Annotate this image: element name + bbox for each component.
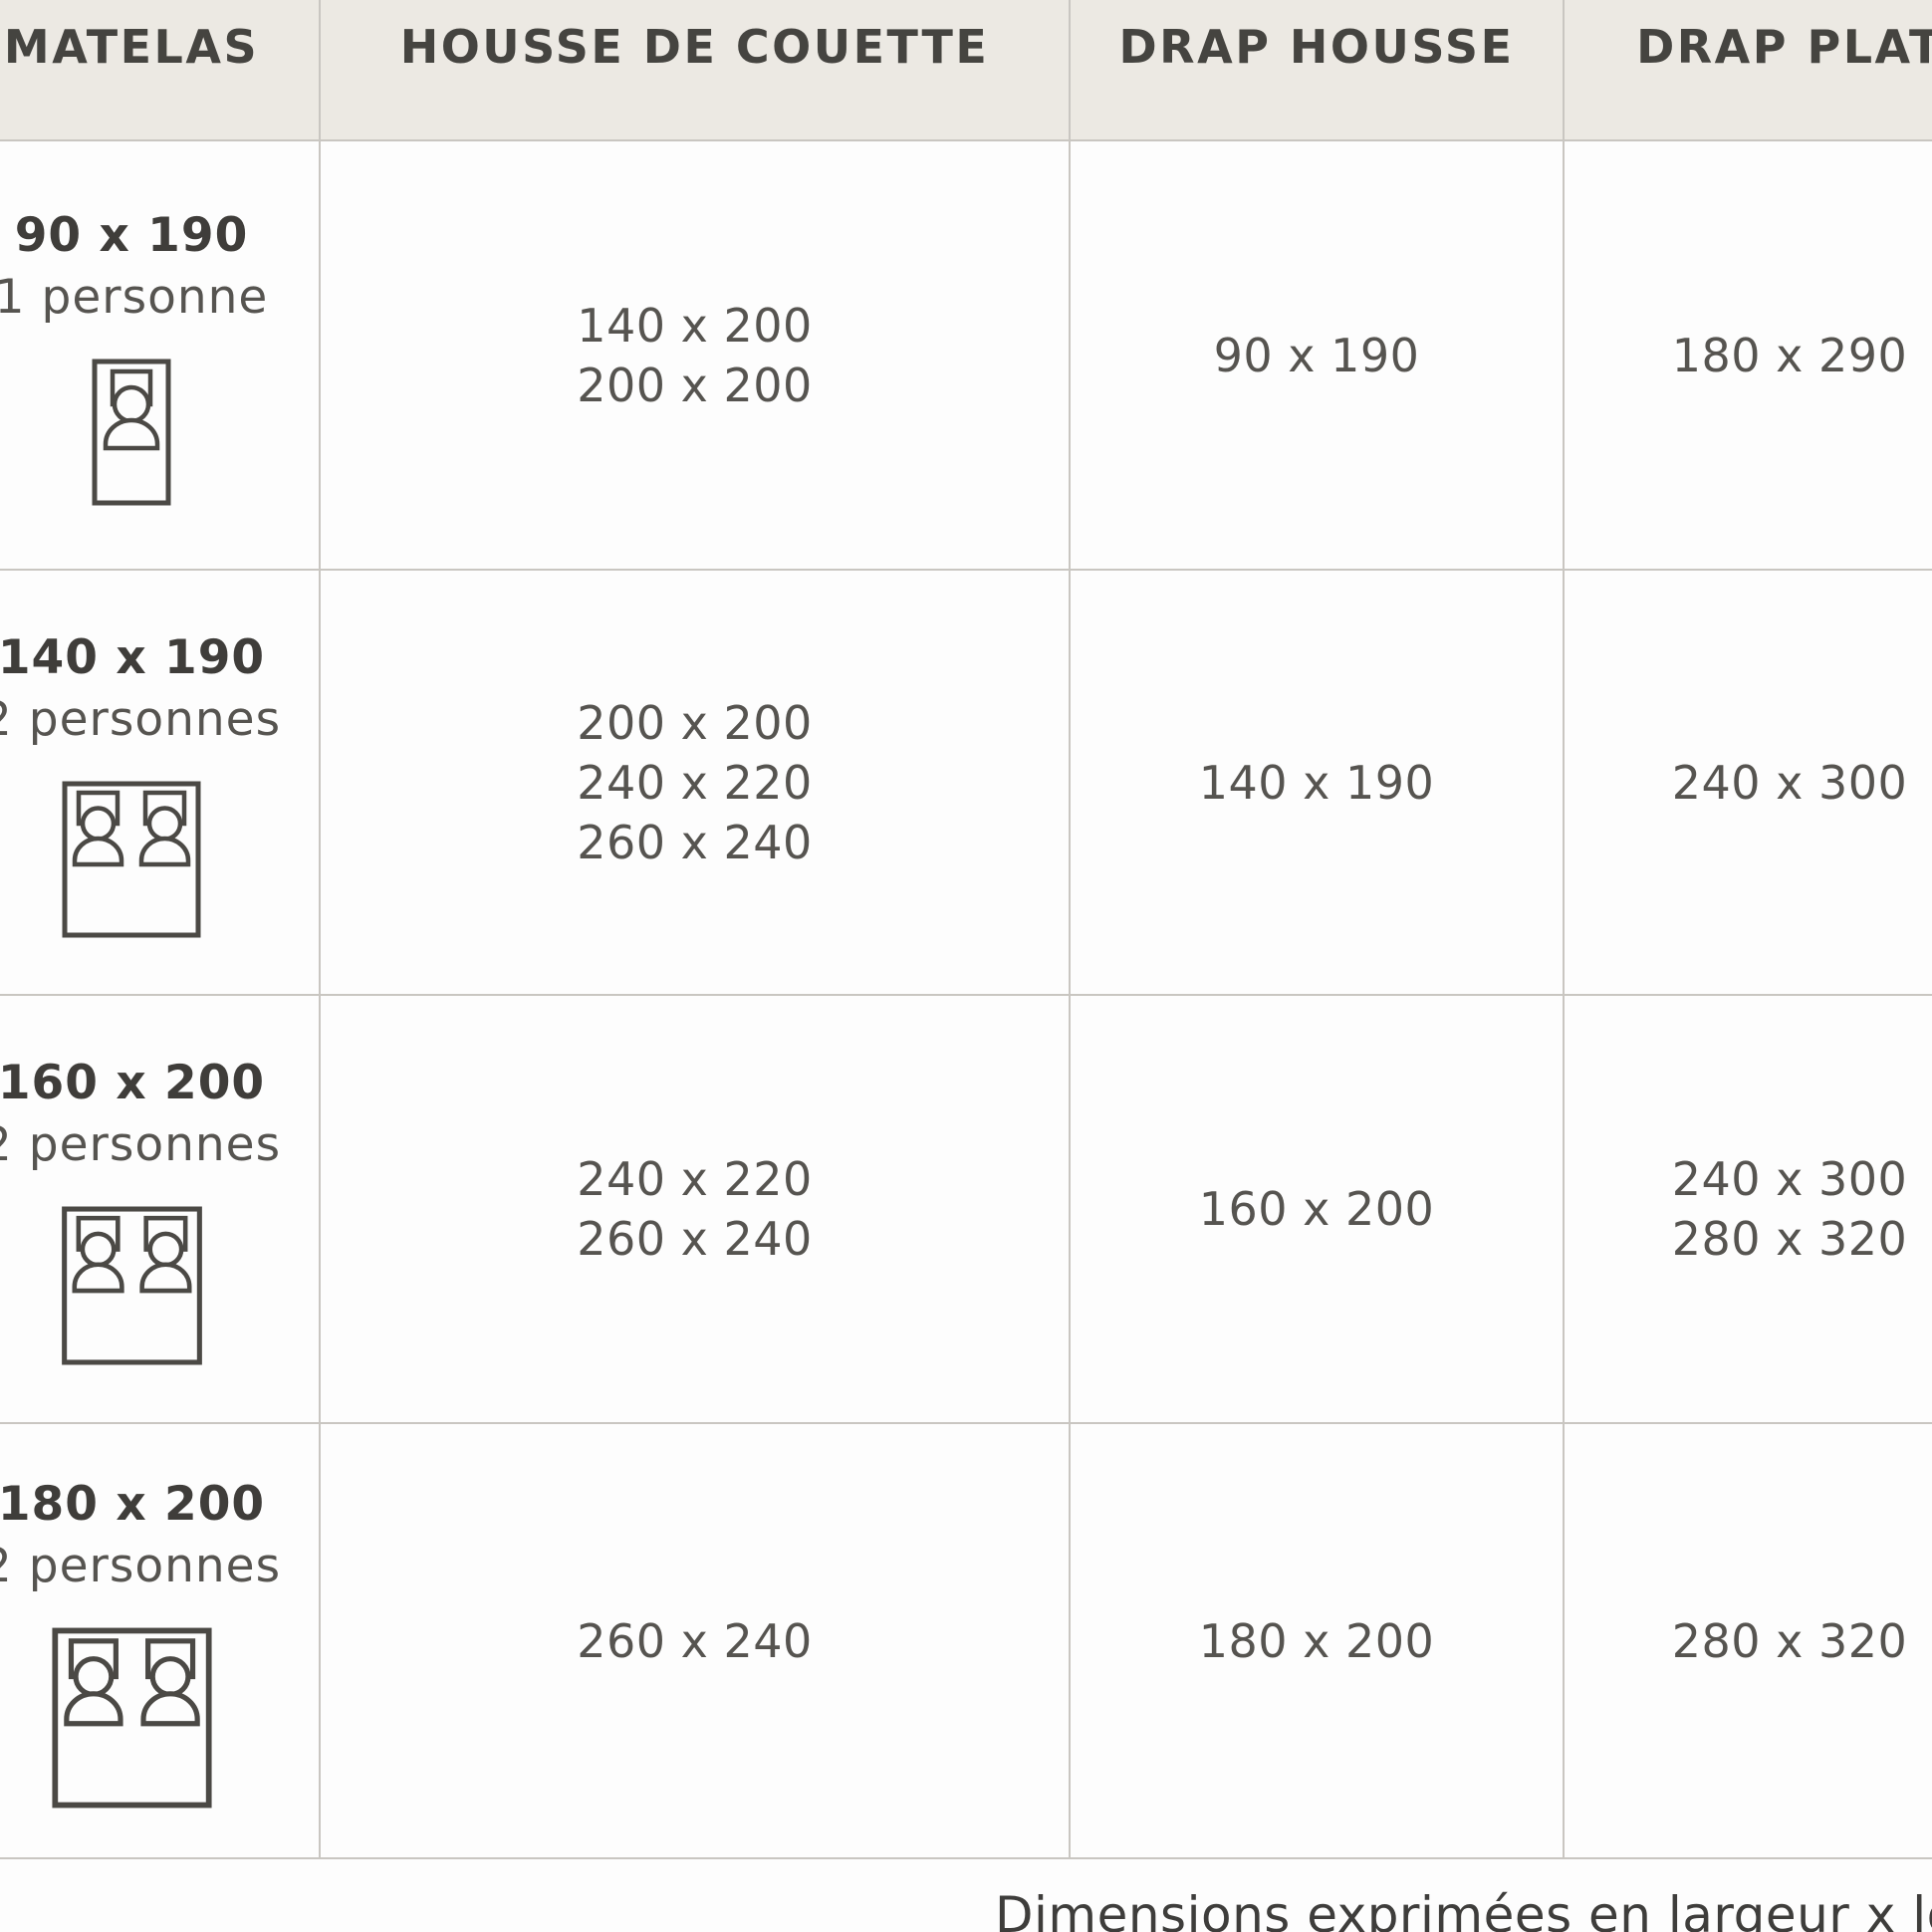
row4-housse-de-couette-cell: 260 x 240: [321, 1424, 1071, 1859]
row3-drap-plat-cell: 240 x 300 280 x 320: [1565, 996, 1932, 1424]
mattress-persons-label: 2 personnes: [0, 689, 281, 751]
mattress-persons-label: 2 personnes: [0, 1114, 281, 1176]
double-bed-icon: [45, 1627, 219, 1809]
size-value: 180 x 200: [1199, 1611, 1435, 1671]
mattress-size-label: 140 x 190: [0, 627, 265, 689]
size-value: 260 x 240: [577, 1209, 813, 1269]
size-table: MATELAS HOUSSE DE COUETTE DRAP HOUSSE DR…: [0, 0, 1932, 1859]
size-value: 140 x 200: [577, 296, 813, 356]
row2-drap-plat-cell: 240 x 300: [1565, 571, 1932, 996]
row2-matelas-cell: 140 x 190 2 personnes: [0, 571, 321, 996]
size-value: 90 x 190: [1214, 326, 1420, 385]
row1-housse-de-couette-cell: 140 x 200 200 x 200: [321, 141, 1071, 571]
header-cell-drap-housse: DRAP HOUSSE: [1071, 0, 1565, 141]
header-label-drap-plat: DRAP PLAT: [1636, 20, 1932, 74]
size-value: 280 x 320: [1672, 1611, 1908, 1671]
row1-drap-housse-cell: 90 x 190: [1071, 141, 1565, 571]
size-value: 160 x 200: [1199, 1179, 1435, 1239]
row3-drap-housse-cell: 160 x 200: [1071, 996, 1565, 1424]
double-bed-icon: [55, 1206, 209, 1365]
mattress-persons-label: 2 personnes: [0, 1536, 281, 1597]
row4-matelas-cell: 180 x 200 2 personnes: [0, 1424, 321, 1859]
header-cell-matelas: MATELAS: [0, 0, 321, 141]
header-cell-housse-de-couette: HOUSSE DE COUETTE: [321, 0, 1071, 141]
row1-matelas-cell: 90 x 190 1 personne: [0, 141, 321, 571]
mattress-size-label: 160 x 200: [0, 1053, 265, 1114]
header-label-matelas: MATELAS: [4, 20, 259, 74]
mattress-size-label: 180 x 200: [0, 1474, 265, 1536]
header-label-housse-de-couette: HOUSSE DE COUETTE: [400, 20, 990, 74]
row2-housse-de-couette-cell: 200 x 200 240 x 220 260 x 240: [321, 571, 1071, 996]
mattress-persons-label: 1 personne: [0, 267, 268, 329]
header-cell-drap-plat: DRAP PLAT: [1565, 0, 1932, 141]
size-value: 240 x 300: [1672, 753, 1908, 813]
single-bed-icon: [92, 359, 171, 506]
size-value: 280 x 320: [1672, 1209, 1908, 1269]
row4-drap-housse-cell: 180 x 200: [1071, 1424, 1565, 1859]
size-value: 240 x 220: [577, 753, 813, 813]
size-value: 140 x 190: [1199, 753, 1435, 813]
size-value: 200 x 200: [577, 693, 813, 753]
dimensions-footnote: Dimensions exprimées en largeur x longue…: [995, 1890, 1932, 1932]
size-value: 180 x 290: [1672, 326, 1908, 385]
header-label-drap-housse: DRAP HOUSSE: [1118, 20, 1514, 74]
size-value: 260 x 240: [577, 1611, 813, 1671]
row4-drap-plat-cell: 280 x 320: [1565, 1424, 1932, 1859]
size-value: 240 x 300: [1672, 1149, 1908, 1209]
size-value: 200 x 200: [577, 356, 813, 415]
row3-matelas-cell: 160 x 200 2 personnes: [0, 996, 321, 1424]
row1-drap-plat-cell: 180 x 290: [1565, 141, 1932, 571]
row3-housse-de-couette-cell: 240 x 220 260 x 240: [321, 996, 1071, 1424]
size-value: 260 x 240: [577, 813, 813, 872]
double-bed-icon: [61, 781, 202, 938]
bedding-size-guide: MATELAS HOUSSE DE COUETTE DRAP HOUSSE DR…: [0, 0, 1932, 1932]
size-value: 240 x 220: [577, 1149, 813, 1209]
mattress-size-label: 90 x 190: [15, 205, 249, 267]
row2-drap-housse-cell: 140 x 190: [1071, 571, 1565, 996]
